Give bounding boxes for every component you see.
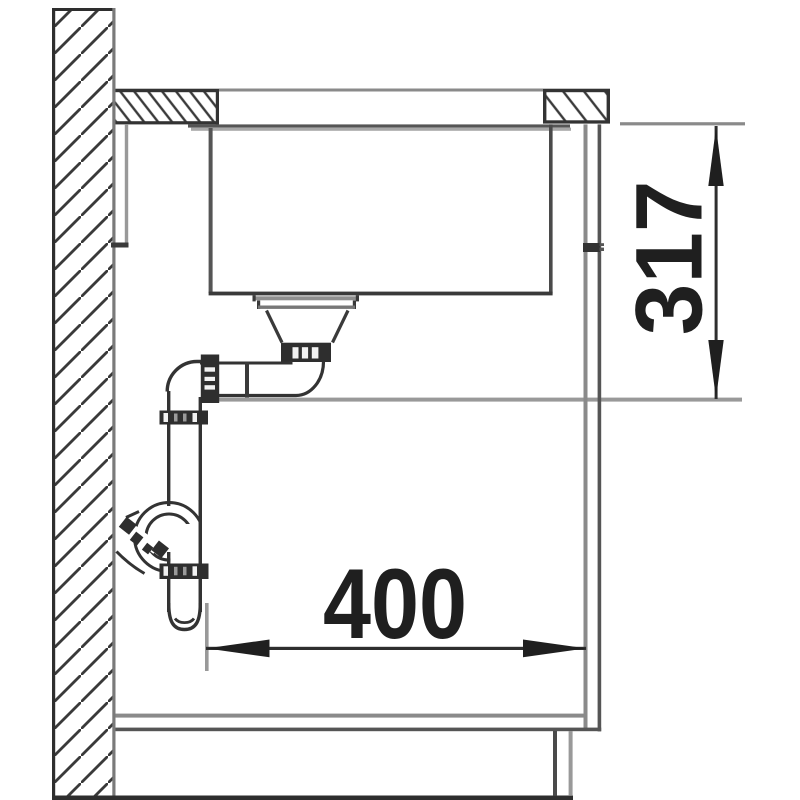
- svg-text:400: 400: [323, 548, 467, 659]
- svg-text:317: 317: [616, 181, 722, 336]
